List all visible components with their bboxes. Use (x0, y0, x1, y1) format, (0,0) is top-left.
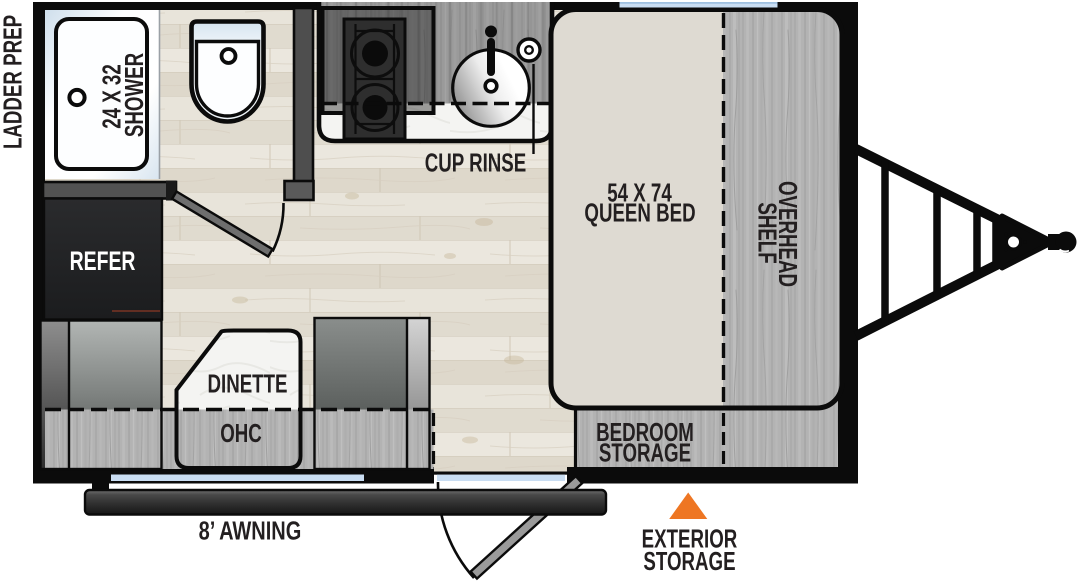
svg-text:STORAGE: STORAGE (643, 546, 735, 576)
svg-text:SHELF: SHELF (753, 202, 783, 263)
svg-text:QUEEN BED: QUEEN BED (584, 197, 695, 227)
svg-text:DINETTE: DINETTE (207, 368, 287, 398)
svg-text:8’ AWNING: 8’ AWNING (199, 516, 302, 545)
svg-text:REFER: REFER (70, 246, 136, 276)
svg-text:OHC: OHC (220, 418, 262, 448)
svg-text:SHOWER: SHOWER (119, 53, 149, 137)
svg-text:STORAGE: STORAGE (599, 437, 691, 467)
svg-text:LADDER PREP: LADDER PREP (0, 15, 27, 149)
svg-text:CUP RINSE: CUP RINSE (425, 147, 527, 177)
